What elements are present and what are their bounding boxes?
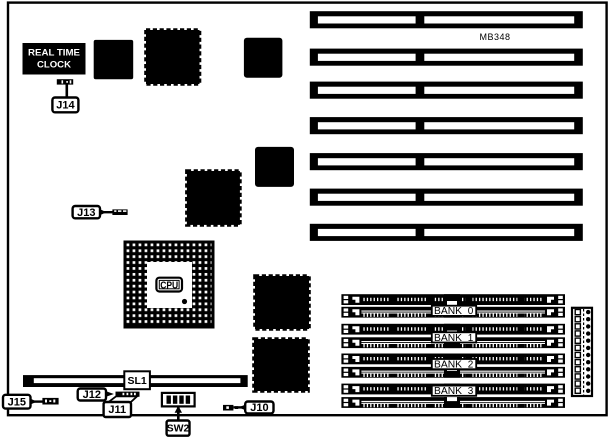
svg-text:0: 0 xyxy=(468,306,474,317)
svg-text:BANK: BANK xyxy=(434,333,462,344)
svg-text:SW2: SW2 xyxy=(167,423,190,435)
svg-text:2: 2 xyxy=(468,360,474,371)
svg-text:J13: J13 xyxy=(77,207,95,219)
svg-text:J12: J12 xyxy=(83,389,101,401)
svg-text:BANK: BANK xyxy=(434,360,462,371)
svg-text:MB348: MB348 xyxy=(479,32,510,42)
svg-text:SL1: SL1 xyxy=(127,375,146,387)
svg-text:CLOCK: CLOCK xyxy=(37,60,72,70)
svg-text:J10: J10 xyxy=(250,402,268,414)
svg-text:BANK: BANK xyxy=(434,306,462,317)
svg-text:BANK: BANK xyxy=(434,386,462,397)
svg-text:J14: J14 xyxy=(56,100,75,112)
svg-text:CPU: CPU xyxy=(160,279,178,291)
svg-text:J11: J11 xyxy=(108,404,126,416)
svg-text:J15: J15 xyxy=(8,396,26,408)
svg-text:1: 1 xyxy=(468,333,474,344)
svg-text:REAL TIME: REAL TIME xyxy=(28,48,80,58)
svg-text:3: 3 xyxy=(468,386,474,397)
